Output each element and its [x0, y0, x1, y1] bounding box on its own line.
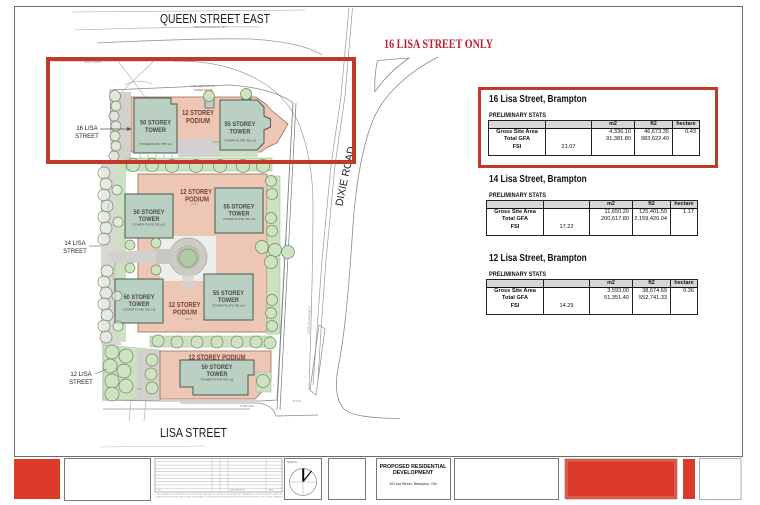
svg-text:No.: No. [158, 490, 162, 492]
svg-text:DATE: DATE [268, 489, 274, 492]
svg-text:DESCRIPTION: DESCRIPTION [230, 490, 245, 492]
svg-text:DIMENSIONS ON SITE AND REPORT: DIMENSIONS ON SITE AND REPORT ANY DISCRE… [156, 496, 284, 499]
svg-text:NORTH: NORTH [287, 460, 297, 464]
